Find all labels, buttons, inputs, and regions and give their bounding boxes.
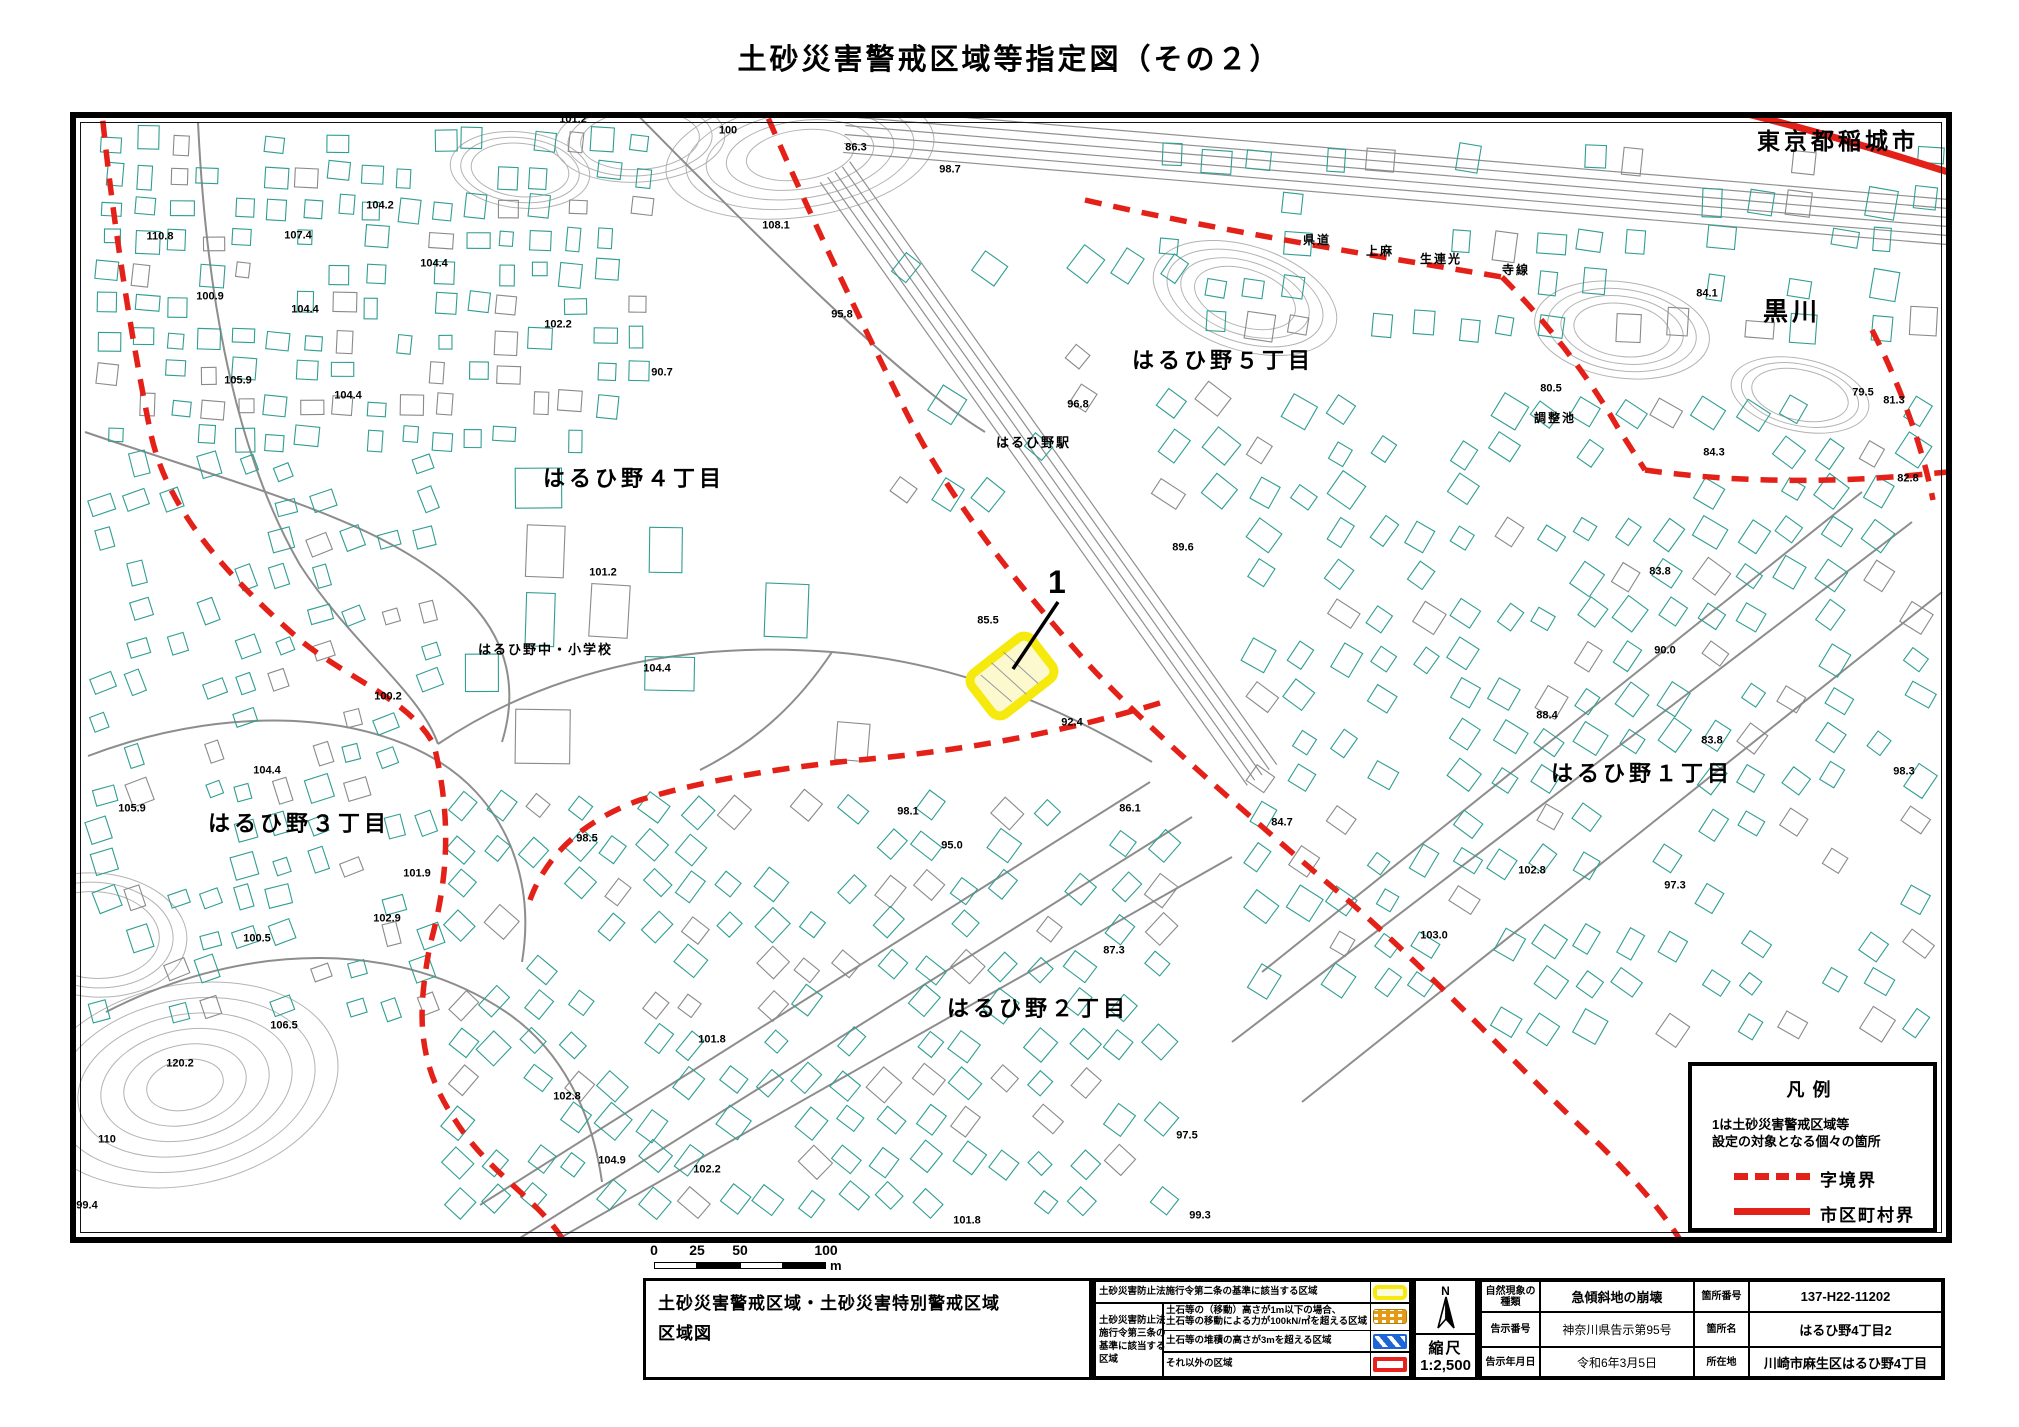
compass-scale-cell: N 縮尺 1:2,500	[1413, 1278, 1478, 1380]
scale-bar-segment	[740, 1262, 783, 1269]
zone-blue-stripes-swatch-icon	[1373, 1334, 1407, 1349]
legend-note-line1: 1は土砂災害警戒区域等	[1712, 1116, 1933, 1133]
details-value-cell: 令和6年3月5日	[1540, 1347, 1694, 1377]
details-header-cell: 自然現象の種類	[1481, 1281, 1540, 1312]
zone-yellow-swatch-icon	[1373, 1285, 1407, 1300]
details-header-cell: 所在地	[1694, 1347, 1749, 1377]
map-type-title-line2: 区域図	[658, 1319, 1077, 1349]
zone-row3-label-cell: 土石等の堆積の高さが3mを超える区域	[1162, 1330, 1371, 1353]
zone-row2-label-cell: 土石等の（移動）高さが1m以下の場合、 土石等の移動による力が100kN/㎡を超…	[1162, 1302, 1371, 1331]
zone-red-outline-swatch-icon	[1373, 1357, 1407, 1372]
scale-tick: 100	[814, 1242, 837, 1258]
zone-row3-label: 土石等の堆積の高さが3mを超える区域	[1163, 1336, 1331, 1347]
details-header-cell: 告示番号	[1481, 1312, 1540, 1347]
solid-boundary-sample	[1734, 1208, 1810, 1215]
legend-note-line2: 設定の対象となる個々の箇所	[1712, 1133, 1933, 1150]
details-header-cell: 箇所名	[1694, 1312, 1749, 1347]
details-header-cell: 告示年月日	[1481, 1347, 1540, 1377]
north-arrow-icon	[1433, 1296, 1459, 1330]
map-frame-inner	[80, 122, 1942, 1233]
details-value-cell: 神奈川県告示第95号	[1540, 1312, 1694, 1347]
details-table: 自然現象の種類急傾斜地の崩壊箇所番号137-H22-11202告示番号神奈川県告…	[1478, 1278, 1945, 1380]
page-title: 土砂災害警戒区域等指定図（その２）	[0, 36, 2019, 78]
legend-note: 1は土砂災害警戒区域等 設定の対象となる個々の箇所	[1712, 1116, 1933, 1150]
details-value-cell: はるひ野4丁目2	[1749, 1312, 1942, 1347]
scale-bar-segment	[654, 1262, 697, 1269]
zone-group-line: 施行令第三条の	[1096, 1327, 1166, 1340]
zone-group-label-cell: 土砂災害防止法 施行令第三条の 基準に該当する 区域	[1095, 1302, 1164, 1377]
scale-tick: 50	[732, 1242, 748, 1258]
zone-group-line: 区域	[1096, 1353, 1118, 1366]
legend-solid-label: 市区町村界	[1820, 1201, 1915, 1226]
details-value-cell: 川崎市麻生区はるひ野4丁目	[1749, 1347, 1942, 1377]
zone-row3-swatch-cell	[1370, 1330, 1411, 1353]
zone-group-line: 土砂災害防止法	[1096, 1314, 1166, 1327]
scale-bar-segment	[783, 1262, 826, 1269]
zone-row4-swatch-cell	[1370, 1351, 1411, 1377]
details-header-cell: 箇所番号	[1694, 1281, 1749, 1312]
zone-row4-label: それ以外の区域	[1163, 1359, 1233, 1370]
scale-tick: 25	[689, 1242, 705, 1258]
dashed-boundary-sample	[1734, 1173, 1810, 1180]
map-type-title-cell: 土砂災害警戒区域・土砂災害特別警戒区域 区域図	[643, 1278, 1092, 1380]
legend-title: 凡例	[1692, 1076, 1933, 1102]
legend-dashed-label: 字境界	[1820, 1166, 1877, 1191]
zone-orange-dots-swatch-icon	[1373, 1309, 1407, 1324]
zone-group-line: 基準に該当する	[1096, 1340, 1166, 1353]
scale-unit: m	[830, 1258, 842, 1273]
details-value-cell: 急傾斜地の崩壊	[1540, 1281, 1694, 1312]
scale-label: 縮尺	[1416, 1337, 1475, 1358]
scale-bar-segment	[697, 1262, 740, 1269]
compass-divider	[1416, 1333, 1475, 1335]
zone-classification-table: 土砂災害防止法施行令第二条の基準に該当する区域 土砂災害防止法 施行令第三条の …	[1092, 1278, 1413, 1380]
zone-row4-label-cell: それ以外の区域	[1162, 1351, 1371, 1377]
legend-row-dashed: 字境界	[1692, 1166, 1933, 1186]
zone-row1-label: 土砂災害防止法施行令第二条の基準に該当する区域	[1096, 1287, 1318, 1298]
map-legend: 凡例 1は土砂災害警戒区域等 設定の対象となる個々の箇所 字境界 市区町村界	[1688, 1062, 1937, 1232]
page: 土砂災害警戒区域等指定図（その２） 東京都稲城市黒川はるひ野５丁目はるひ野４丁目…	[0, 0, 2019, 1427]
zone-row1-label-cell: 土砂災害防止法施行令第二条の基準に該当する区域	[1095, 1281, 1371, 1304]
map-type-title-line1: 土砂災害警戒区域・土砂災害特別警戒区域	[658, 1289, 1077, 1319]
scale-value: 1:2,500	[1416, 1357, 1475, 1374]
scale-tick: 0	[650, 1242, 658, 1258]
zone-row2-label: 土石等の（移動）高さが1m以下の場合、 土石等の移動による力が100kN/㎡を超…	[1163, 1306, 1367, 1327]
details-value-cell: 137-H22-11202	[1749, 1281, 1942, 1312]
legend-row-solid: 市区町村界	[1692, 1201, 1933, 1221]
zone-row1-swatch-cell	[1370, 1281, 1411, 1304]
zone-row2-swatch-cell	[1370, 1302, 1411, 1331]
